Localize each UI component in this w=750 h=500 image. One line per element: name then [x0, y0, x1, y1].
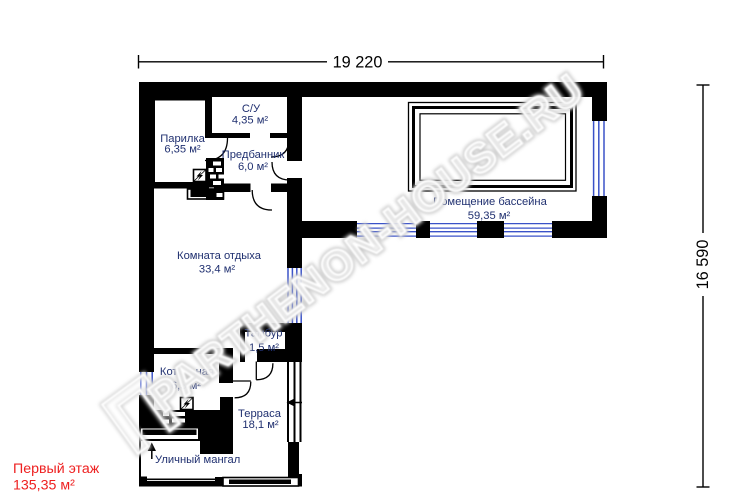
svg-text:Первый этаж: Первый этаж [13, 461, 100, 477]
svg-text:18,1 м²: 18,1 м² [242, 419, 279, 431]
svg-text:Комната отдыха: Комната отдыха [177, 250, 262, 262]
svg-text:Уличный мангал: Уличный мангал [155, 454, 240, 466]
svg-text:16 590: 16 590 [694, 240, 712, 290]
svg-text:4,35 м²: 4,35 м² [232, 115, 269, 127]
svg-text:Предбанник: Предбанник [222, 149, 285, 161]
svg-text:33,4 м²: 33,4 м² [199, 264, 236, 276]
svg-text:59,35 м²: 59,35 м² [468, 210, 511, 222]
svg-text:С/У: С/У [242, 103, 261, 115]
svg-text:19 220: 19 220 [333, 54, 383, 72]
svg-text:6,35 м²: 6,35 м² [164, 144, 201, 156]
svg-text:135,35 м²: 135,35 м² [13, 478, 75, 494]
svg-text:6,0 м²: 6,0 м² [238, 161, 268, 173]
